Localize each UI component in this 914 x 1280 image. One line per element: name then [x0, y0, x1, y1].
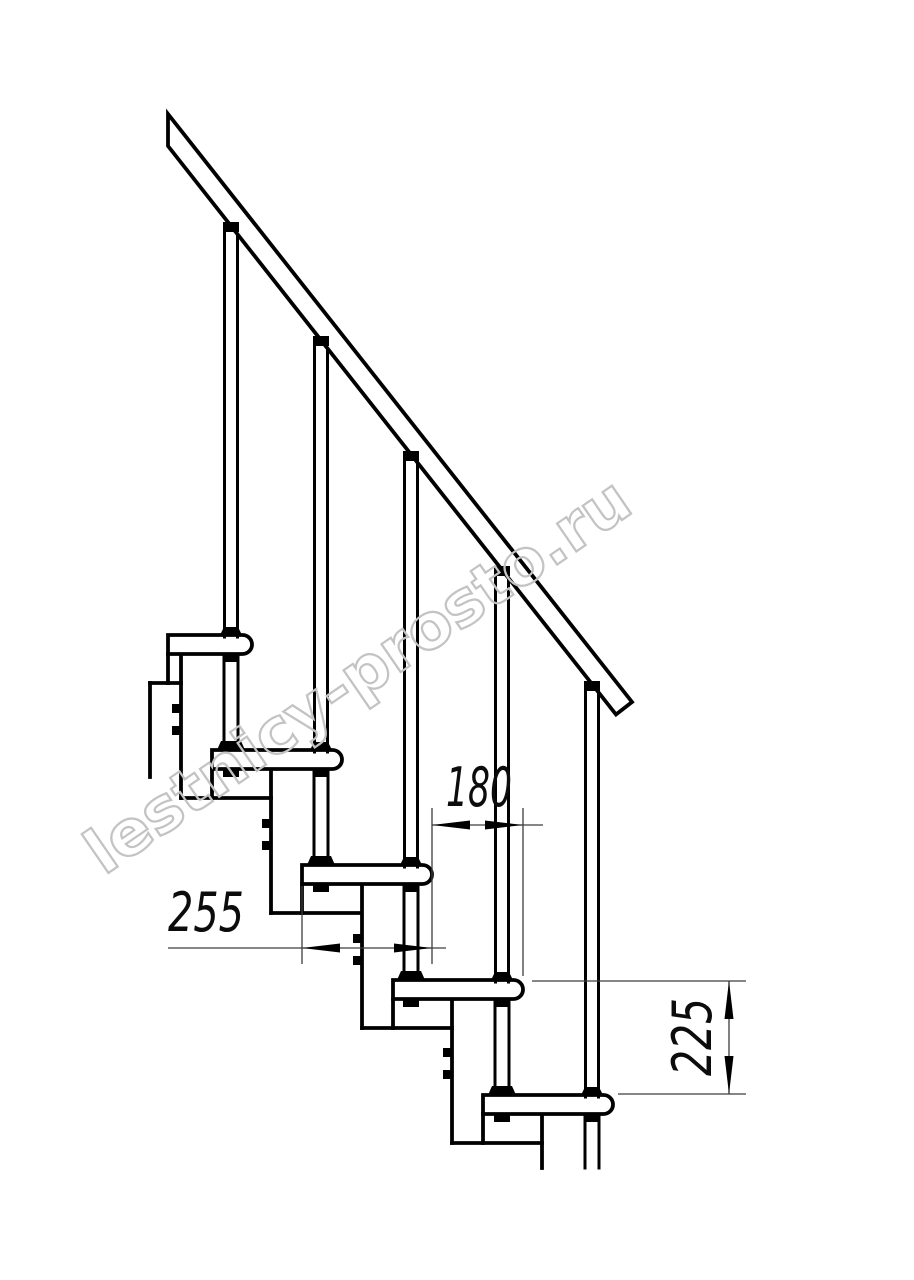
tread-nut [223, 654, 239, 662]
arrow-up-icon [725, 981, 734, 1019]
support-post-cut [585, 1114, 599, 1168]
watermark-text: lestnicy-prosto.ru [71, 463, 644, 888]
baluster-cap [223, 222, 239, 232]
baluster-cap [403, 451, 419, 461]
tread-nut [494, 1114, 510, 1122]
tread-1 [168, 635, 252, 654]
post-landing-base [397, 971, 425, 980]
tread-5 [483, 1095, 613, 1114]
tread-3 [302, 865, 432, 884]
baluster [586, 687, 599, 1097]
dimension-value-255: 255 [168, 881, 244, 944]
tread-nut [313, 884, 329, 892]
dimension-180: 180 [432, 756, 543, 976]
post-landing-base [307, 856, 335, 865]
baluster [225, 228, 238, 637]
tread-nut [584, 1114, 600, 1122]
support-post [495, 999, 509, 1097]
tread-nut [403, 999, 419, 1007]
arrow-right-icon [485, 821, 523, 830]
dimension-225: 225 [532, 981, 746, 1094]
tread-nut [403, 884, 419, 892]
dimension-value-225: 225 [661, 998, 724, 1076]
treads [168, 635, 613, 1114]
staircase-technical-drawing: 180 255 225 lestnicy-prosto.ru [0, 0, 914, 1280]
arrow-right-icon [394, 944, 432, 953]
baluster-cap [313, 336, 329, 346]
baluster-cap [584, 681, 600, 691]
tread-nut [313, 769, 329, 777]
dimension-value-180: 180 [446, 756, 512, 819]
tread-4 [393, 980, 523, 999]
staircase-drawing-canvas: 180 255 225 lestnicy-prosto.ru [0, 0, 914, 1280]
support-post [314, 769, 328, 867]
tread-nut [494, 999, 510, 1007]
arrow-left-icon [302, 944, 340, 953]
arrow-down-icon [725, 1056, 734, 1094]
post-landing-base [488, 1086, 516, 1095]
arrow-left-icon [432, 821, 470, 830]
support-post [404, 884, 418, 982]
